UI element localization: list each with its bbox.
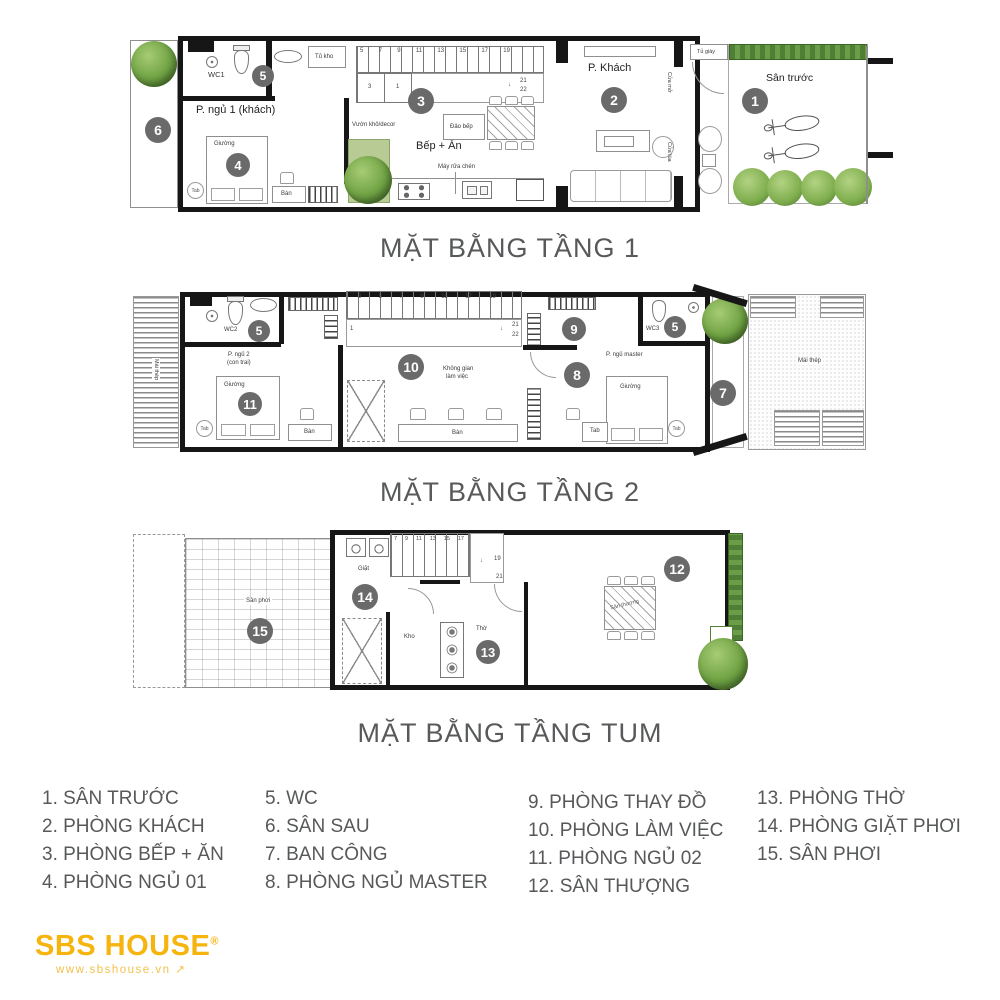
staircase-landing	[346, 319, 522, 347]
roof-panel	[750, 296, 796, 318]
wardrobe	[324, 315, 338, 339]
marker-12: 12	[664, 556, 690, 582]
legend-item: 9. PHÒNG THAY ĐỒ	[528, 792, 706, 814]
room-label-living: P. Khách	[588, 62, 631, 74]
toilet-tank	[227, 296, 244, 302]
tree	[698, 638, 748, 690]
marker-1: 1	[742, 88, 768, 114]
room-label-storage: Kho	[404, 634, 415, 641]
floor2-title: MẶT BẰNG TẦNG 2	[130, 477, 890, 508]
label-roof-right: Mái thép	[796, 358, 823, 365]
legend-item: 8. PHÒNG NGỦ MASTER	[265, 872, 488, 894]
tv	[604, 136, 634, 147]
bedside-table: Tab	[668, 420, 685, 437]
label-bed: Giường	[214, 141, 235, 148]
shrub	[767, 170, 803, 206]
label-dishwasher: Máy rửa chén	[438, 164, 475, 171]
chair	[624, 631, 638, 640]
tv-cabinet	[584, 46, 656, 57]
bathtub	[250, 298, 277, 312]
label-door-slide: Cửa lùa	[666, 142, 672, 162]
wardrobe	[308, 186, 338, 203]
label-door-open: Cửa mở	[666, 72, 672, 92]
marker-5: 5	[252, 65, 274, 87]
room-label-workspace: Không gian	[443, 366, 473, 373]
stair-step-number: 22	[512, 332, 519, 338]
room-label-front-yard: Sân trước	[766, 72, 813, 84]
legend-item: 6. SÂN SAU	[265, 816, 370, 838]
washing-machine-icon	[346, 538, 366, 557]
chair	[505, 96, 518, 105]
chair	[521, 96, 534, 105]
bedside-table: Tab	[187, 182, 204, 199]
toilet-tank	[233, 45, 250, 51]
marker-14: 14	[352, 584, 378, 610]
roof-panel	[774, 410, 820, 446]
label-island: Đảo bếp	[450, 124, 473, 131]
room-label-laundry: Giặt	[358, 566, 369, 573]
label-storage: Tủ kho	[315, 54, 333, 61]
marker-5: 5	[248, 320, 270, 342]
washbasin-icon	[206, 56, 218, 68]
altar-table	[440, 622, 464, 678]
room-label-master: P. ngủ master	[606, 352, 643, 359]
roof-panel	[822, 410, 864, 446]
room-label-wc1: WC1	[208, 70, 225, 79]
stair-arrow-icon: ↓	[500, 326, 503, 332]
bed-cushion	[611, 428, 635, 441]
hedge	[729, 44, 867, 60]
floor1-title: MẶT BẰNG TẦNG 1	[130, 233, 890, 264]
wall	[638, 296, 643, 344]
tum-title: MẶT BẰNG TẦNG TUM	[130, 718, 890, 749]
chair	[566, 408, 580, 420]
bed-cushion	[639, 428, 663, 441]
room-label-bedroom2-sub: (con trai)	[227, 360, 251, 367]
legend-item: 14. PHÒNG GIẶT PHƠI	[757, 816, 961, 838]
wall	[556, 186, 568, 207]
stair-step-number: 9	[397, 48, 400, 54]
stair-step-number: 5	[360, 48, 363, 54]
drying-yard-area	[185, 538, 337, 688]
kitchen-sink	[462, 181, 492, 199]
stair-step-number: 17	[465, 294, 472, 300]
wall	[638, 341, 706, 346]
stair-step-number: 5	[379, 294, 382, 300]
legend-item: 4. PHÒNG NGỦ 01	[42, 872, 207, 894]
dining-table	[487, 106, 535, 140]
label-shoe-cabinet: Tủ giày	[697, 49, 715, 55]
stair-step-number: 17	[458, 536, 464, 542]
chair	[280, 172, 294, 184]
clothes-rack	[527, 388, 541, 440]
stair-arrow-icon: ↓	[480, 558, 483, 564]
stair-step-number: 7	[394, 536, 397, 542]
stair-step-number: 11	[416, 48, 422, 54]
marker-15: 15	[247, 618, 273, 644]
wardrobe	[288, 297, 338, 311]
stair-step-number: 7	[400, 294, 403, 300]
entry-table	[702, 154, 716, 167]
arrow-ne-icon: ↗	[175, 964, 186, 976]
chair	[521, 141, 534, 150]
bed-cushion	[221, 424, 246, 436]
stair-step-number: 1	[396, 84, 399, 90]
legend-item: 13. PHÒNG THỜ	[757, 788, 905, 810]
sofa	[570, 170, 672, 202]
room-label-kitchen: Bếp + Ăn	[416, 140, 462, 152]
kitchen-cabinet	[516, 179, 544, 201]
registered-mark-icon: ®	[210, 935, 219, 947]
stair-step-number: 15	[444, 536, 450, 542]
wall	[188, 41, 214, 52]
wall	[420, 580, 460, 584]
wall	[338, 345, 343, 447]
tree	[344, 156, 392, 204]
wall	[183, 96, 275, 101]
room-label-altar: Thờ	[476, 626, 487, 633]
hedge	[728, 533, 743, 641]
void-shaft	[342, 618, 382, 684]
dishwasher-pointer	[455, 172, 456, 194]
chair	[448, 408, 464, 420]
marker-9: 9	[562, 317, 586, 341]
website-text: www.sbshouse.vn	[56, 964, 171, 976]
chair	[489, 141, 502, 150]
legend-item: 11. PHÒNG NGỦ 02	[528, 848, 702, 870]
legend-item: 3. PHÒNG BẾP + ĂN	[42, 844, 224, 866]
marker-3: 3	[408, 88, 434, 114]
stair-step-number: 17	[481, 48, 488, 54]
label-dry-garden: Vườn khô/decor	[352, 122, 395, 129]
room-label-bedroom1: P. ngủ 1 (khách)	[196, 104, 275, 116]
gate-post	[868, 152, 893, 158]
legend-item: 12. SÂN THƯỢNG	[528, 876, 690, 898]
marker-4: 4	[226, 153, 250, 177]
stair-step-number: 19	[489, 294, 496, 300]
stair-step-number: 3	[358, 294, 361, 300]
washbasin-icon	[206, 310, 218, 322]
label-desk: Bàn	[452, 430, 463, 437]
marker-8: 8	[564, 362, 590, 388]
chair	[410, 408, 426, 420]
chair	[607, 576, 621, 585]
marker-13: 13	[476, 640, 500, 664]
bed-cushion	[211, 188, 235, 201]
stair-step-number: 13	[430, 536, 436, 542]
room-label-drying-yard: Sân phơi	[244, 598, 272, 605]
stair-step-number: 9	[405, 536, 408, 542]
label-side-table: Tab	[590, 428, 600, 435]
entry-chair	[698, 168, 722, 194]
chair	[489, 96, 502, 105]
clothes-rack	[548, 297, 596, 310]
legend-item: 7. BAN CÔNG	[265, 844, 387, 866]
wall	[185, 342, 281, 347]
stair-step-number: 21	[512, 322, 519, 328]
logo-website: www.sbshouse.vn ↗	[56, 962, 186, 976]
logo-text: SBS HOUSE	[35, 930, 210, 962]
stair-step-numbers: 3 5 7 9 15 17 19	[358, 294, 496, 300]
marker-5: 5	[664, 316, 686, 338]
label-bed: Giường	[620, 384, 641, 391]
vanity-basin	[274, 50, 302, 63]
stair-step-number: 19	[494, 556, 501, 562]
tree	[131, 41, 177, 87]
wall	[386, 612, 390, 686]
shrub	[801, 170, 837, 206]
marker-7: 7	[710, 380, 736, 406]
gate-post	[868, 58, 893, 64]
stair-step-numbers: 5 7 9 11 13 15 17 19	[360, 48, 510, 54]
entry-chair	[698, 126, 722, 152]
label-desk: Bàn	[304, 429, 315, 436]
stair-step-number: 7	[379, 48, 382, 54]
stair-step-number: 3	[368, 84, 371, 90]
marker-10: 10	[398, 354, 424, 380]
chair	[607, 631, 621, 640]
wall	[190, 296, 212, 306]
legend-item: 15. SÂN PHƠI	[757, 844, 881, 866]
chair	[505, 141, 518, 150]
shrub	[733, 168, 771, 206]
marker-6: 6	[145, 117, 171, 143]
stair-step-number: 15	[441, 294, 448, 300]
void-shaft	[347, 380, 385, 442]
stair-arrow-icon: ↓	[508, 82, 511, 88]
room-label-wc3: WC3	[646, 326, 659, 333]
stair-step-number: 1	[350, 326, 353, 332]
stair-step-number: 19	[503, 48, 510, 54]
stair-step-number: 11	[416, 536, 422, 542]
bed-cushion	[239, 188, 263, 201]
washing-machine-icon	[369, 538, 389, 557]
wall	[524, 582, 528, 688]
chair	[641, 631, 655, 640]
label-roof-left: Mái thép	[152, 358, 160, 381]
stair-step-number: 15	[459, 48, 466, 54]
room-label-wc2: WC2	[224, 327, 237, 334]
label-bed: Giường	[224, 382, 245, 389]
sbs-house-logo: SBS HOUSE®	[35, 930, 219, 963]
chair	[486, 408, 502, 420]
chair	[624, 576, 638, 585]
stair-step-number: 13	[437, 48, 444, 54]
stair-step-number: 21	[520, 78, 527, 84]
room-label-workspace-sub: làm việc	[446, 374, 468, 381]
wall	[523, 345, 577, 350]
wall	[674, 176, 683, 207]
legend-item: 2. PHÒNG KHÁCH	[42, 816, 205, 838]
stair-step-numbers: 7 9 11 13 15 17	[394, 536, 464, 542]
wall	[674, 41, 683, 67]
clothes-rack	[527, 313, 541, 347]
floorplan-sheet: 6 WC1 5 Tủ kho P. ngủ 1 (khách) Giường 4…	[0, 0, 1000, 1000]
wall	[279, 296, 284, 344]
cooktop-icon	[398, 183, 430, 200]
roof-panel	[820, 296, 864, 318]
washbasin-icon	[688, 302, 699, 313]
bedside-table: Tab	[196, 420, 213, 437]
open-boundary	[133, 534, 185, 688]
stair-step-number: 9	[420, 294, 423, 300]
room-label-bedroom2: P. ngủ 2	[228, 352, 250, 359]
legend-item: 5. WC	[265, 788, 318, 810]
marker-11: 11	[238, 392, 262, 416]
chair	[300, 408, 314, 420]
staircase-lower-run	[356, 73, 412, 103]
chair	[641, 576, 655, 585]
wall	[556, 41, 568, 63]
legend-item: 10. PHÒNG LÀM VIỆC	[528, 820, 723, 842]
legend-item: 1. SÂN TRƯỚC	[42, 788, 179, 810]
bed-cushion	[250, 424, 275, 436]
marker-2: 2	[601, 87, 627, 113]
stair-step-number: 21	[496, 574, 503, 580]
stair-step-number: 22	[520, 87, 527, 93]
property-line	[866, 46, 868, 204]
label-desk: Bàn	[281, 191, 292, 198]
